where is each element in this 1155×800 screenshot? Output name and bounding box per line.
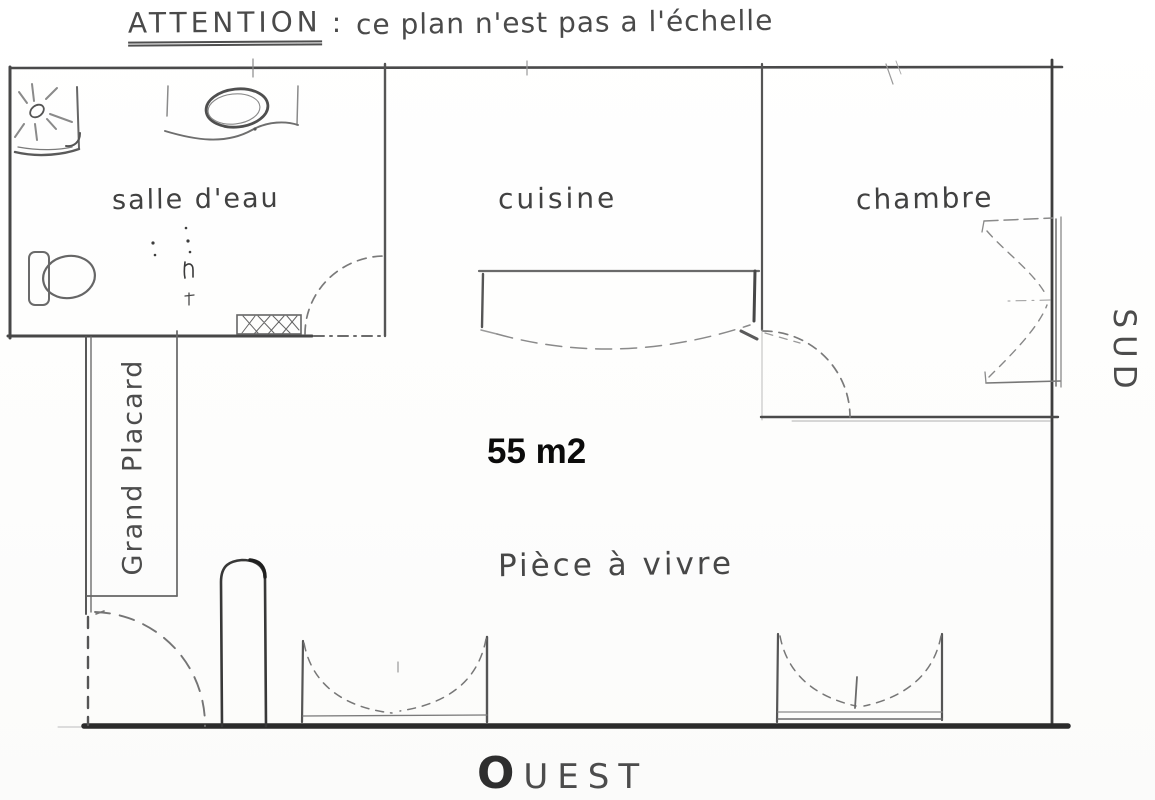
spray-ray-e	[50, 114, 72, 122]
mid-dash	[1008, 300, 1050, 301]
window-living-1	[302, 637, 487, 722]
mark-dot	[151, 241, 154, 244]
washbasin-icon	[165, 86, 298, 140]
compass-south-label: SUD	[1106, 308, 1142, 395]
warning-separator: :	[332, 6, 342, 39]
casement-arc-left	[304, 643, 392, 713]
jamb-left	[302, 641, 303, 722]
sweep-arc	[497, 325, 750, 349]
door-arc	[305, 256, 385, 334]
mark-eta	[184, 262, 193, 278]
warning-word: ATTENTION	[128, 5, 322, 46]
bedroom-window	[982, 217, 1061, 387]
radiator-icon	[237, 315, 301, 334]
tray-bottom-double	[18, 147, 72, 150]
sweep-tail	[765, 333, 800, 343]
leaf-bottom-hook	[985, 372, 986, 383]
mark-dot	[186, 239, 189, 242]
spray-ray-ne	[46, 88, 57, 99]
area-label: 55 m2	[487, 432, 586, 472]
water-heater-icon	[221, 560, 266, 726]
cistern	[29, 252, 49, 305]
jamb-right	[754, 271, 755, 321]
walls	[8, 59, 1068, 727]
casement-arc-bottom	[989, 305, 1047, 377]
room-label-bedroom: chambre	[856, 181, 994, 216]
casement-arc-left	[780, 636, 856, 706]
room-label-living-room: Pièce à vivre	[498, 546, 734, 584]
spray-ray-s	[35, 124, 37, 140]
room-label-bathroom: salle d'eau	[112, 183, 280, 216]
door-arc	[95, 612, 205, 726]
leaf-bottom	[986, 381, 1060, 383]
kitchen-pass-through	[479, 271, 800, 349]
center-mark	[855, 677, 857, 708]
room-label-closet: Grand Placard	[118, 359, 149, 576]
window-living-2	[777, 634, 942, 722]
hatch-lines	[242, 316, 299, 334]
floor-plan-drawing	[0, 0, 1155, 800]
casement-arc-top	[987, 231, 1047, 297]
spray-ray-se	[47, 119, 56, 129]
leaf-top-hook	[982, 221, 984, 232]
door-arc	[763, 331, 850, 417]
mark-dot	[189, 251, 192, 254]
room-label-kitchen: cuisine	[498, 181, 618, 215]
bathroom-door-swing	[305, 256, 385, 334]
floor-plan-canvas: ATTENTION:ce plan n'est pas a l'échelle …	[0, 0, 1155, 800]
mark-dot	[185, 227, 188, 230]
compass-west-label: OUEST	[477, 748, 648, 799]
casement-arc-right	[400, 639, 486, 711]
entry-door-swing	[95, 611, 205, 726]
stray-dot	[253, 127, 256, 130]
casement-arc-right	[864, 636, 941, 706]
mark-small-t	[185, 293, 194, 305]
pencil-marks	[151, 227, 194, 305]
mark-dot	[154, 254, 157, 257]
warning-text: ce plan n'est pas a l'échelle	[356, 4, 774, 41]
counter-left-edge	[167, 86, 168, 116]
counter-right-edge	[297, 86, 298, 125]
leaf-top	[984, 218, 1053, 221]
spray-ray-nw	[19, 92, 27, 103]
spray-ray-n	[32, 84, 34, 101]
sweep-start	[481, 330, 497, 334]
scale-warning: ATTENTION:ce plan n'est pas a l'échelle	[128, 6, 773, 46]
column-body	[221, 560, 266, 726]
bedroom-door-swing	[763, 331, 850, 417]
sill-line	[303, 715, 487, 716]
toilet-icon	[29, 252, 98, 305]
jamb-left	[482, 274, 483, 327]
corner-mark	[741, 331, 757, 339]
jamb-left	[777, 634, 778, 722]
shower-icon	[15, 84, 80, 155]
wall-top	[10, 67, 1062, 68]
counter-front-edge	[165, 122, 298, 139]
drain	[28, 102, 47, 120]
spray-ray-sw	[15, 124, 24, 137]
